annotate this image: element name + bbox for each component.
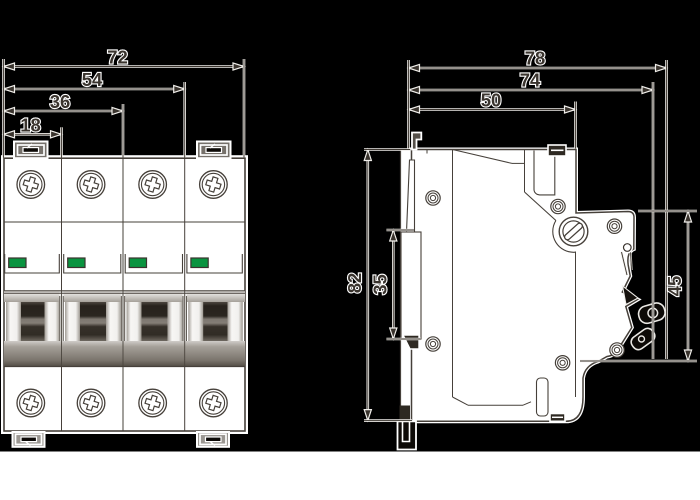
svg-text:82: 82 [344, 273, 365, 294]
svg-text:45: 45 [664, 276, 685, 297]
svg-text:36: 36 [50, 91, 71, 112]
svg-text:54: 54 [82, 69, 103, 90]
svg-text:78: 78 [525, 48, 546, 69]
svg-text:18: 18 [20, 114, 41, 135]
svg-text:50: 50 [481, 90, 502, 111]
svg-text:72: 72 [107, 47, 128, 68]
svg-text:74: 74 [520, 70, 541, 91]
svg-text:35: 35 [370, 274, 391, 295]
